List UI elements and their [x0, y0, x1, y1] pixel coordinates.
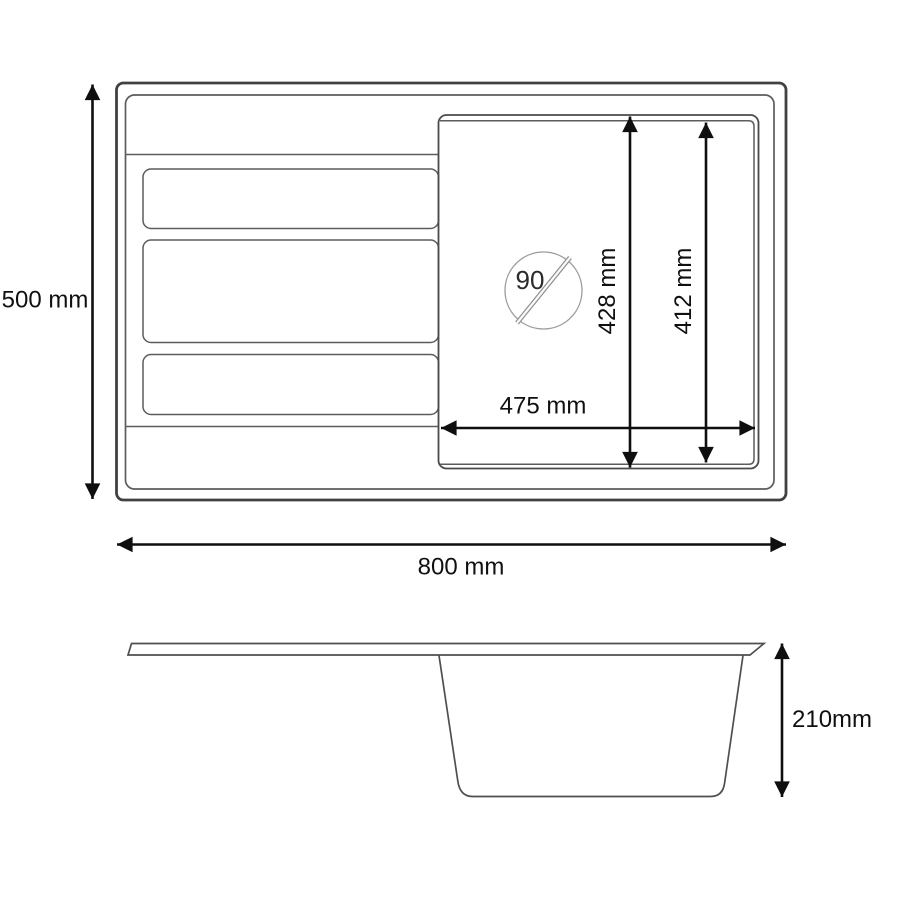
side-view: 210mm [128, 644, 872, 798]
drain-diameter-label: 90 [516, 265, 545, 295]
drainer-groove-bottom [143, 355, 439, 415]
drainer-groove-middle [143, 240, 439, 343]
dim-label-bowl-height: 210mm [792, 706, 872, 733]
dim-label-overall-width: 800 mm [418, 554, 505, 581]
dim-label-basin-depth-inner: 412 mm [670, 248, 697, 335]
drawing-svg: 90 428 mm 412 mm 475 mm 500 mm 800 mm 21… [0, 0, 900, 900]
top-view: 90 428 mm 412 mm 475 mm 500 mm 800 mm [2, 83, 786, 581]
sink-technical-drawing: 90 428 mm 412 mm 475 mm 500 mm 800 mm 21… [0, 0, 900, 900]
dim-label-overall-depth: 500 mm [2, 287, 89, 314]
dim-label-basin-width: 475 mm [500, 393, 587, 420]
drainer-groove-top [143, 169, 439, 229]
side-view-bowl-profile [439, 656, 743, 797]
side-view-rim-slab [128, 644, 764, 656]
dim-label-basin-depth-outer: 428 mm [594, 248, 621, 335]
